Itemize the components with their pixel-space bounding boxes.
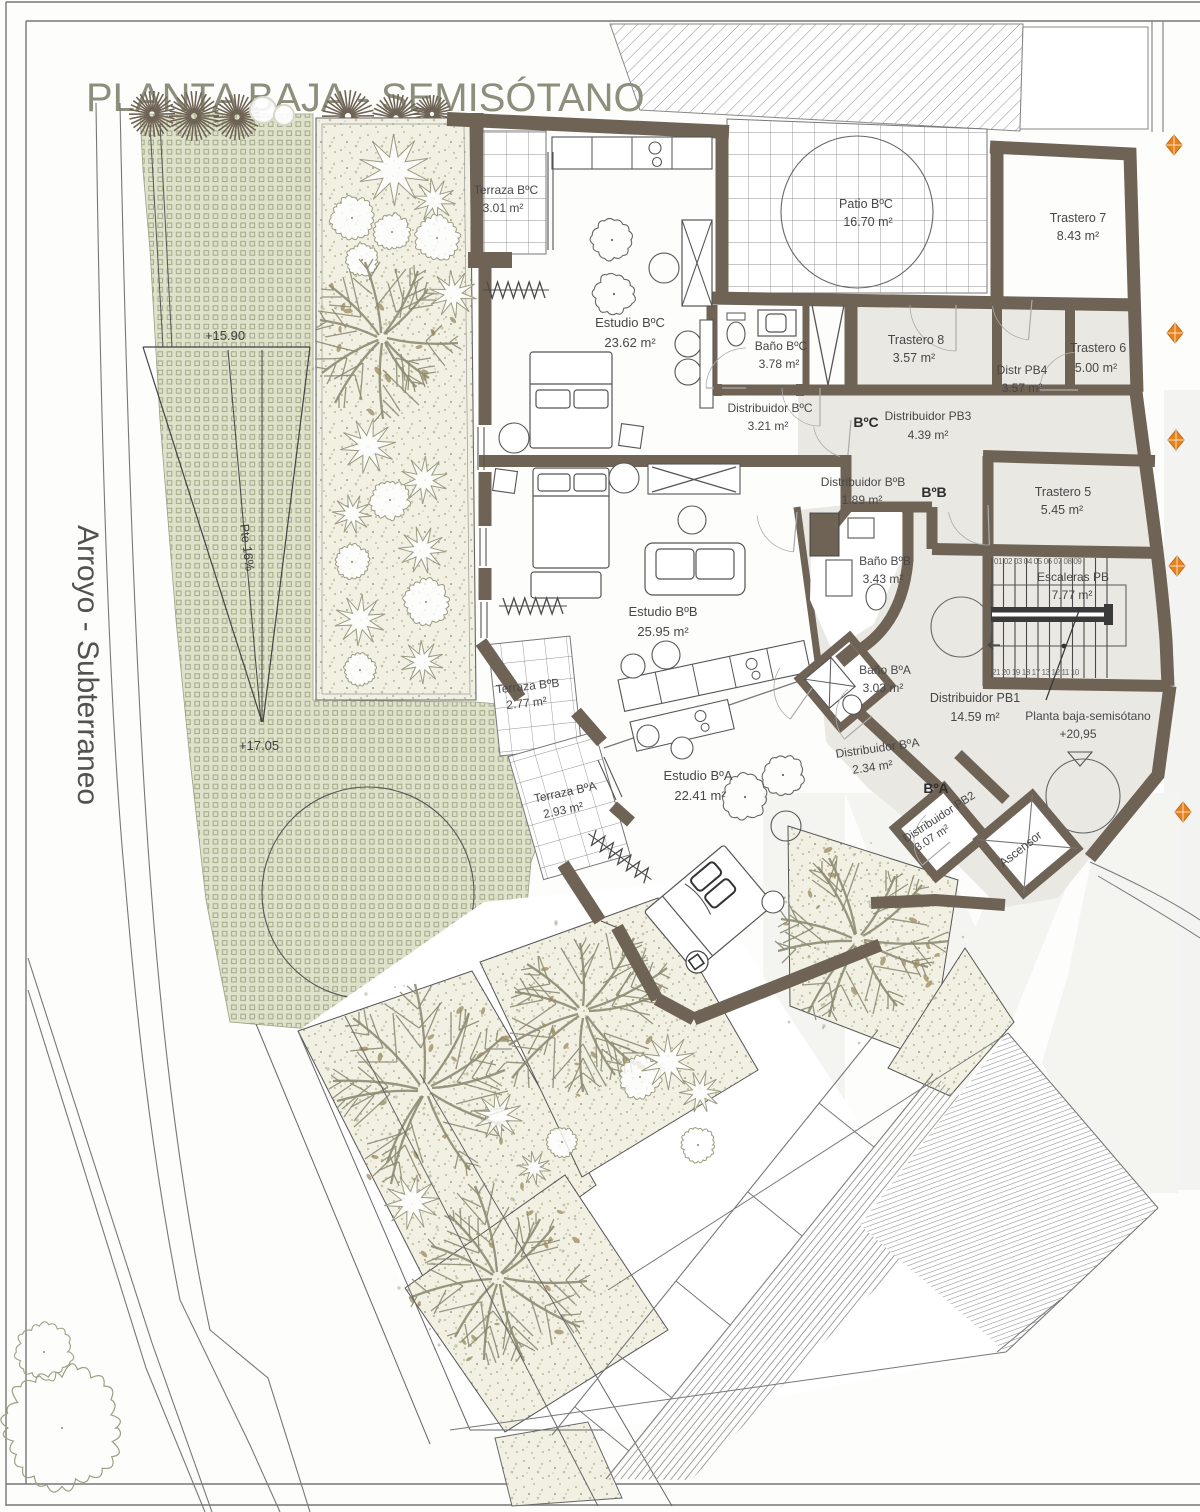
svg-text:5.45 m²: 5.45 m² [1041, 503, 1083, 517]
svg-text:Distribuidor BºC: Distribuidor BºC [727, 401, 812, 415]
svg-text:Trastero 5: Trastero 5 [1035, 485, 1092, 499]
svg-text:3.57 m²: 3.57 m² [893, 351, 935, 365]
svg-text:25.95 m²: 25.95 m² [637, 624, 689, 639]
svg-text:Trastero 6: Trastero 6 [1070, 341, 1127, 355]
svg-text:Trastero 7: Trastero 7 [1050, 211, 1107, 225]
svg-text:23.62 m²: 23.62 m² [604, 335, 656, 350]
svg-text:BºC: BºC [853, 414, 878, 430]
svg-text:22.41 m²: 22.41 m² [674, 788, 726, 803]
svg-text:BºB: BºB [921, 484, 946, 500]
svg-text:Distribuidor BºB: Distribuidor BºB [821, 475, 905, 489]
svg-text:Baño BºB: Baño BºB [859, 554, 911, 568]
svg-text:Baño BºA: Baño BºA [859, 663, 911, 677]
svg-text:7.77 m²: 7.77 m² [1052, 588, 1093, 602]
svg-text:3.78 m²: 3.78 m² [759, 357, 800, 371]
svg-text:Arroyo - Subterraneo: Arroyo - Subterraneo [71, 525, 104, 805]
svg-text:Trastero 8: Trastero 8 [888, 333, 945, 347]
svg-text:3.01 m²: 3.01 m² [483, 201, 524, 215]
svg-text:3.03 m²: 3.03 m² [863, 681, 904, 695]
svg-text:4.39 m²: 4.39 m² [908, 428, 949, 442]
svg-text:1.89 m²: 1.89 m² [842, 493, 883, 507]
svg-text:16.70 m²: 16.70 m² [843, 215, 892, 229]
svg-text:Distribuidor PB3: Distribuidor PB3 [885, 409, 972, 423]
svg-text:3.57 m²: 3.57 m² [1002, 381, 1043, 395]
svg-text:Distribuidor PB1: Distribuidor PB1 [930, 691, 1020, 705]
svg-text:Estudio BºA: Estudio BºA [663, 768, 732, 783]
svg-text:3.21 m²: 3.21 m² [748, 419, 789, 433]
svg-text:BºA: BºA [923, 780, 948, 796]
svg-text:+17.05: +17.05 [239, 738, 279, 753]
svg-text:Estudio BºB: Estudio BºB [628, 604, 697, 619]
svg-text:Distr PB4: Distr PB4 [997, 363, 1048, 377]
svg-text:01 02 03 04 05 06 07 08 09: 01 02 03 04 05 06 07 08 09 [994, 557, 1082, 566]
svg-text:+20,95: +20,95 [1059, 727, 1096, 741]
svg-text:Escaleras PB: Escaleras PB [1037, 570, 1109, 584]
svg-text:8.43 m²: 8.43 m² [1057, 229, 1099, 243]
svg-text:21 20 19 18 17 13 12 11 10: 21 20 19 18 17 13 12 11 10 [992, 668, 1080, 677]
svg-text:Patio BºC: Patio BºC [839, 197, 893, 211]
svg-text:Baño BºC: Baño BºC [755, 339, 808, 353]
svg-text:5.00 m²: 5.00 m² [1075, 361, 1117, 375]
svg-text:Planta baja-semisótano: Planta baja-semisótano [1025, 709, 1151, 723]
svg-text:Estudio BºC: Estudio BºC [595, 315, 665, 330]
svg-text:+15.90: +15.90 [205, 328, 245, 343]
svg-text:Terraza BºC: Terraza BºC [474, 183, 539, 197]
svg-text:3.43 m²: 3.43 m² [863, 572, 904, 586]
svg-text:14.59 m²: 14.59 m² [950, 710, 999, 724]
